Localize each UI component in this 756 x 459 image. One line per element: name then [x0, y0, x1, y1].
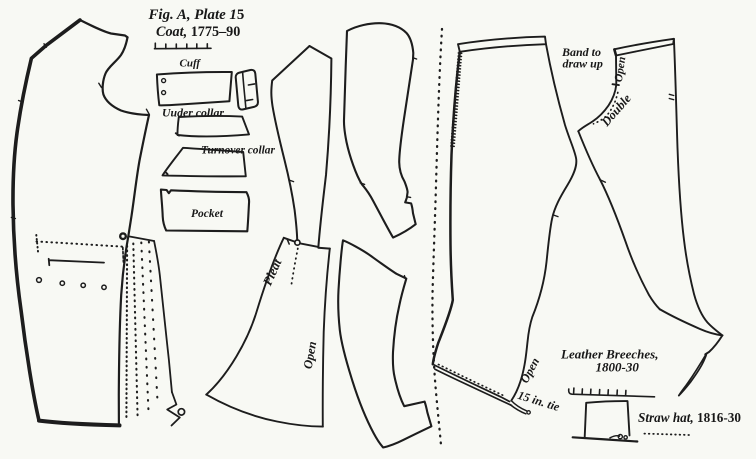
svg-text:Fig. A, Plate 15: Fig. A, Plate 15	[148, 7, 245, 23]
svg-text:15 in. tie: 15 in. tie	[516, 388, 562, 414]
svg-text:Cuff: Cuff	[180, 58, 202, 70]
svg-text:Open: Open	[613, 56, 628, 83]
svg-text:1800-30: 1800-30	[596, 360, 640, 375]
svg-text:Pleat: Pleat	[260, 256, 285, 288]
svg-text:Uuder collar: Uuder collar	[162, 106, 224, 120]
svg-text:Open: Open	[517, 355, 542, 385]
svg-text:Pocket: Pocket	[191, 208, 224, 220]
svg-text:Straw hat, 1816-30: Straw hat, 1816-30	[638, 410, 741, 425]
svg-text:Open: Open	[301, 340, 320, 370]
svg-text:draw up: draw up	[563, 57, 603, 71]
svg-text:Coat, 1775–90: Coat, 1775–90	[156, 24, 240, 40]
